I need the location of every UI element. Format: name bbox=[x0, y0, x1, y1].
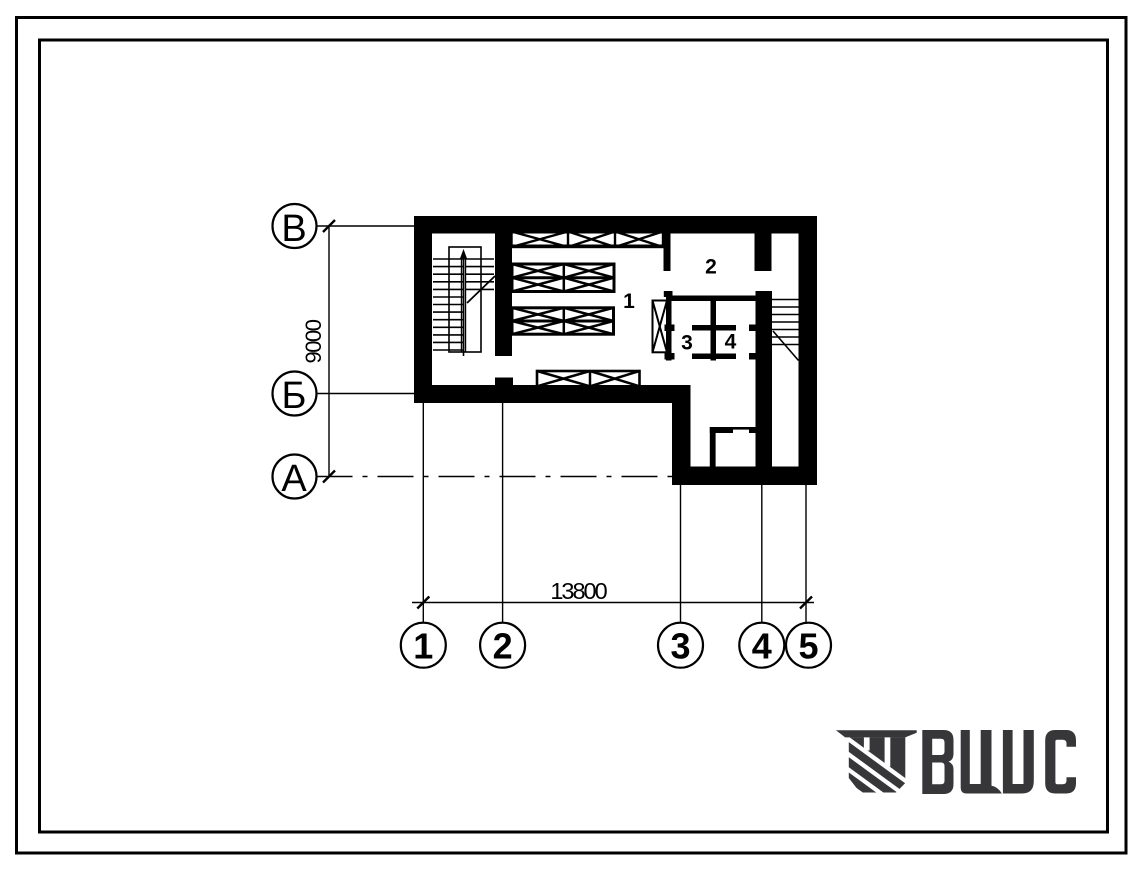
svg-text:13800: 13800 bbox=[550, 578, 607, 604]
svg-text:3: 3 bbox=[670, 626, 690, 667]
svg-text:В: В bbox=[281, 208, 306, 250]
svg-text:3: 3 bbox=[681, 332, 693, 355]
svg-text:1: 1 bbox=[413, 626, 433, 667]
svg-text:1: 1 bbox=[623, 290, 635, 313]
svg-text:А: А bbox=[281, 458, 307, 500]
svg-text:2: 2 bbox=[705, 256, 717, 279]
svg-text:Б: Б bbox=[282, 375, 307, 417]
svg-text:9000: 9000 bbox=[301, 319, 326, 363]
svg-text:2: 2 bbox=[493, 626, 513, 667]
svg-text:4: 4 bbox=[752, 626, 772, 667]
svg-text:5: 5 bbox=[798, 626, 818, 667]
svg-text:4: 4 bbox=[725, 331, 737, 354]
